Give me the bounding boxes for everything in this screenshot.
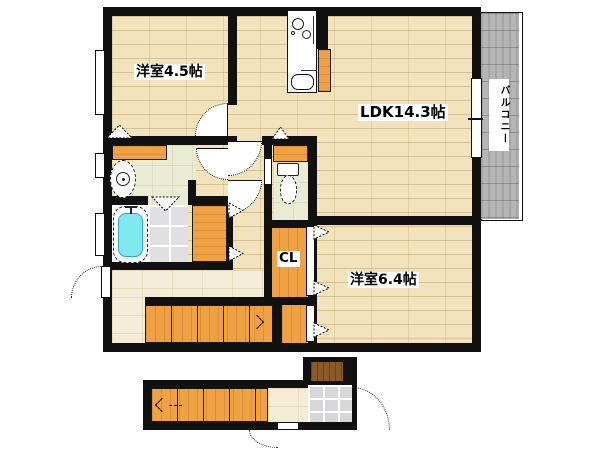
lower-hall-floor (268, 388, 308, 422)
bath-tile-floor (148, 205, 188, 262)
wall (145, 297, 315, 305)
room64-label: 洋室6.4帖 (348, 272, 419, 288)
toilet-cabinet (273, 145, 308, 162)
door-swing-side-exterior (71, 266, 102, 298)
wall (308, 216, 481, 225)
door-triangle-right (313, 322, 330, 338)
stove-burner (292, 18, 304, 30)
hallway-floor-left (112, 297, 145, 343)
hallway-floor (112, 270, 264, 297)
door-triangle-right (228, 245, 244, 262)
window-balcony-sliding (471, 78, 482, 158)
toilet-door-gap (264, 158, 272, 185)
window-bathroom (95, 213, 105, 256)
counter-divider (301, 70, 317, 71)
washroom-cabinet (112, 145, 167, 160)
washbasin-drain (122, 178, 125, 181)
counter-divider (313, 16, 314, 44)
wall (316, 7, 328, 49)
hall-storage-cabinet (192, 205, 227, 262)
door-swing-entrance (352, 387, 390, 430)
kitchen-counter (287, 10, 317, 93)
wall (228, 16, 237, 105)
bathtub-basin (118, 213, 143, 257)
stove-burner-small (291, 31, 295, 35)
room45-label: 洋室4.5帖 (134, 64, 205, 80)
entrance-door (310, 361, 344, 382)
closet-cl-label: CL (277, 251, 300, 267)
wall (273, 303, 282, 343)
door-triangle-down (151, 196, 180, 212)
door-triangle-up (271, 126, 290, 140)
stove-burner (302, 30, 311, 39)
floor-plan: バルコニー (0, 0, 600, 450)
window-bedroom45 (95, 50, 105, 115)
door-triangle-right (313, 280, 330, 296)
window-mid-rail (468, 118, 483, 120)
wall (188, 180, 196, 205)
porch-door-gap (277, 422, 299, 430)
door-triangle-right (313, 224, 330, 240)
door-triangle-right (228, 202, 244, 219)
toilet-bowl (280, 175, 297, 204)
wall (103, 262, 233, 270)
side-door (101, 266, 111, 298)
stair-landing (282, 305, 307, 343)
wall (264, 228, 272, 305)
stair-arrow-tail (169, 405, 182, 406)
bathtub (113, 206, 148, 263)
kitchen-sink (291, 74, 314, 90)
ldk-label: LDK14.3帖 (358, 104, 448, 121)
window-washroom (95, 153, 105, 178)
faucet-icon (130, 206, 132, 214)
door-triangle-up (106, 124, 133, 139)
washbasin (110, 160, 136, 198)
genkan-tile-floor (308, 385, 352, 422)
door-swing-porch (249, 430, 278, 448)
refrigerator-space (318, 49, 331, 92)
wall (264, 143, 272, 228)
balcony-label: バルコニー (489, 79, 509, 151)
